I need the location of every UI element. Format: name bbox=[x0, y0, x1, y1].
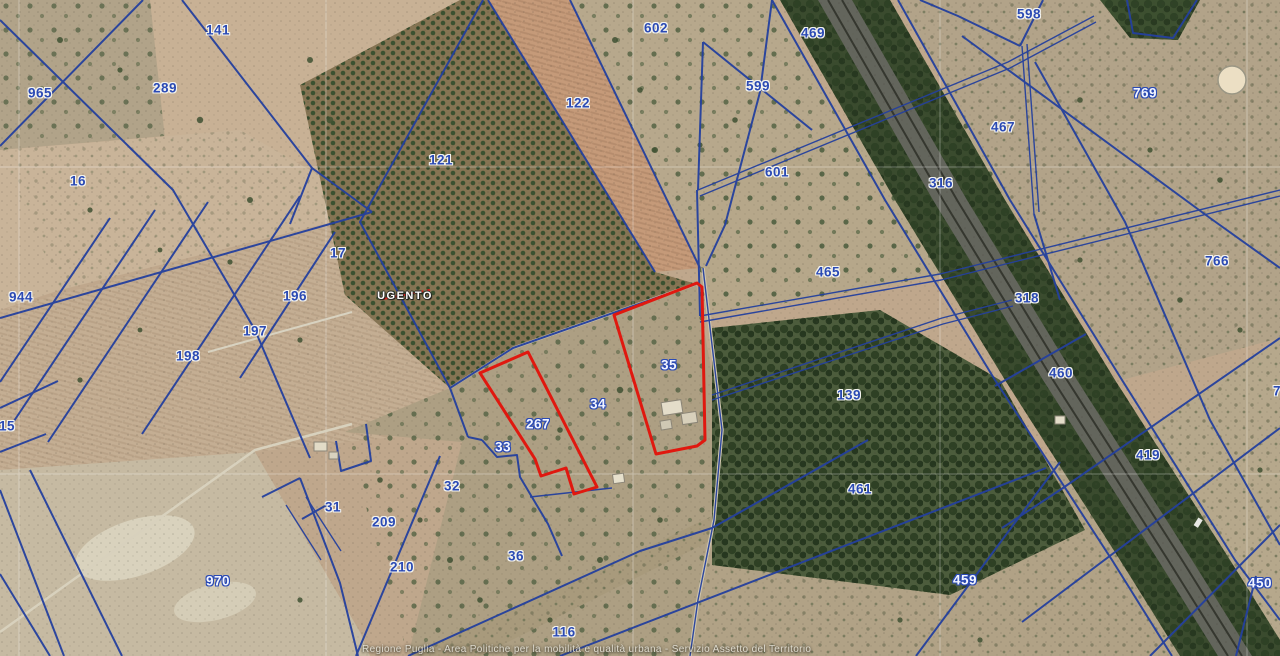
water-tank bbox=[1218, 66, 1246, 94]
small-building bbox=[329, 452, 338, 459]
attribution-text: Regione Puglia - Area Politiche per la m… bbox=[362, 644, 811, 655]
map-viewport[interactable]: 1419652891617944196197198159703132209210… bbox=[0, 0, 1280, 656]
small-building bbox=[314, 442, 327, 451]
map-canvas bbox=[0, 0, 1280, 656]
terrain-layer bbox=[0, 0, 1280, 656]
small-building bbox=[612, 473, 624, 483]
municipality-label: UGENTO bbox=[377, 290, 433, 302]
small-building bbox=[1055, 416, 1065, 424]
